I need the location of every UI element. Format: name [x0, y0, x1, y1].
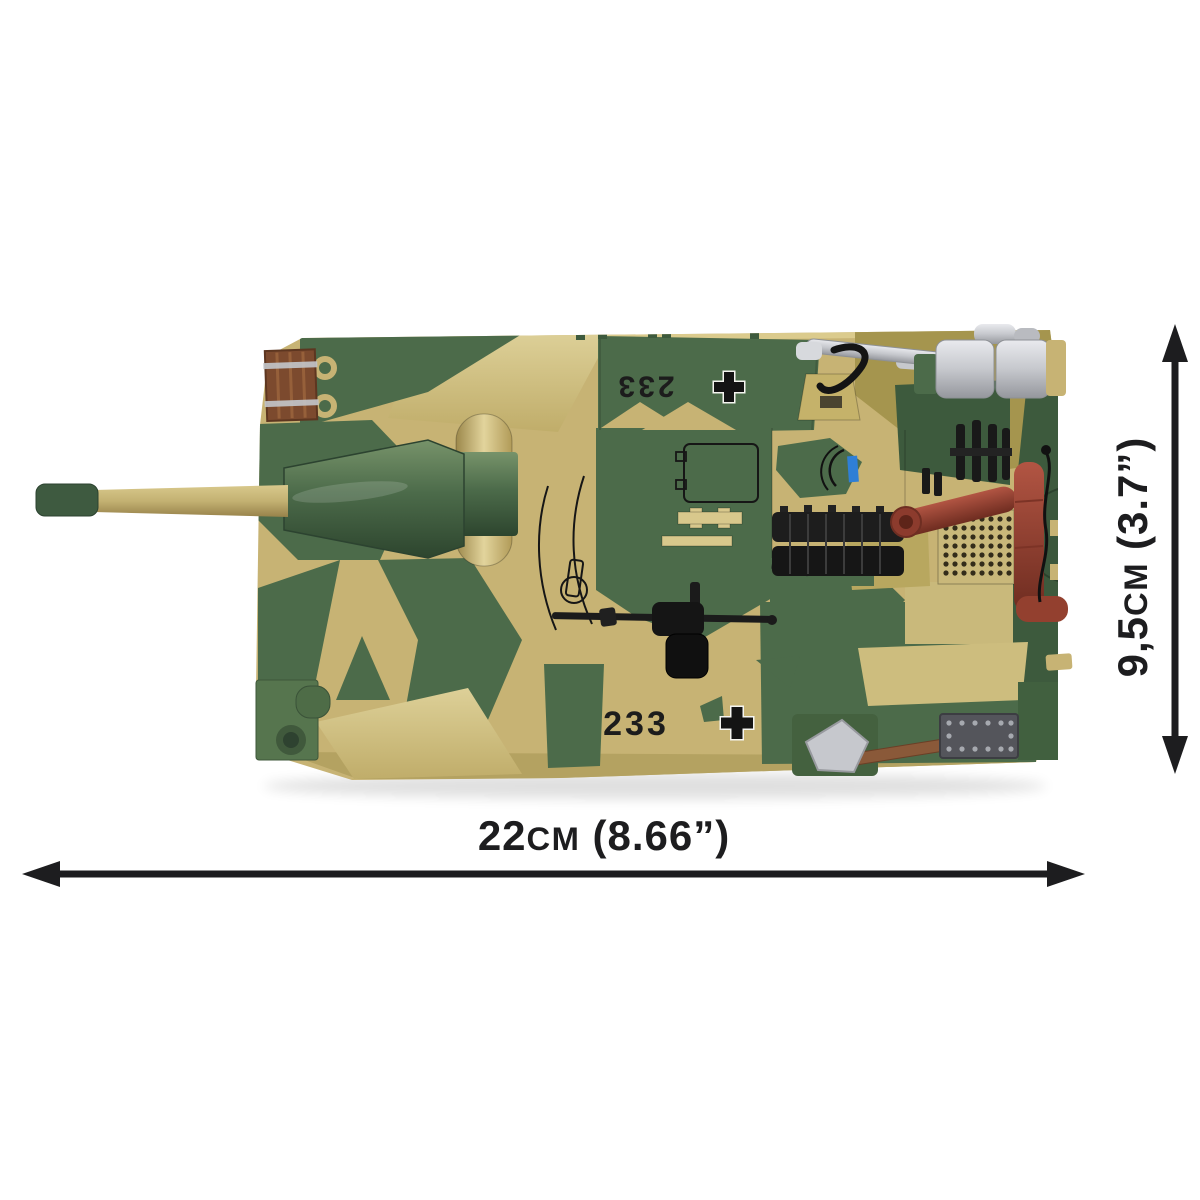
- tactical-number-top: 233: [615, 370, 674, 403]
- height-value: 9,5: [1109, 616, 1156, 677]
- width-value: 22: [478, 812, 527, 859]
- width-unit: cm: [527, 820, 581, 857]
- width-dimension-label: 22cm(8.66”): [478, 812, 730, 860]
- tactical-number-bottom: 233: [603, 705, 669, 743]
- arrow-right-head: [1047, 861, 1085, 887]
- product-dimension-image: 233 233: [0, 0, 1200, 1200]
- gun-barrel: [94, 485, 288, 517]
- tank-top-view-photo: 233 233: [0, 0, 1200, 1200]
- height-unit: cm: [1117, 562, 1154, 616]
- svg-text:233: 233: [615, 370, 674, 403]
- height-dimension-arrow: [1150, 312, 1200, 787]
- arrow-top-head: [1162, 324, 1188, 362]
- width-imperial: (8.66”): [592, 812, 730, 859]
- arrow-bottom-head: [1162, 736, 1188, 774]
- wooden-crate: [263, 349, 319, 421]
- svg-text:233: 233: [603, 705, 669, 743]
- height-imperial: (3.7”): [1109, 437, 1156, 550]
- width-dimension-arrow: [0, 854, 1200, 898]
- muzzle: [36, 484, 98, 516]
- height-dimension-label: 9,5cm(3.7”): [1109, 437, 1157, 678]
- arrow-left-head: [22, 861, 60, 887]
